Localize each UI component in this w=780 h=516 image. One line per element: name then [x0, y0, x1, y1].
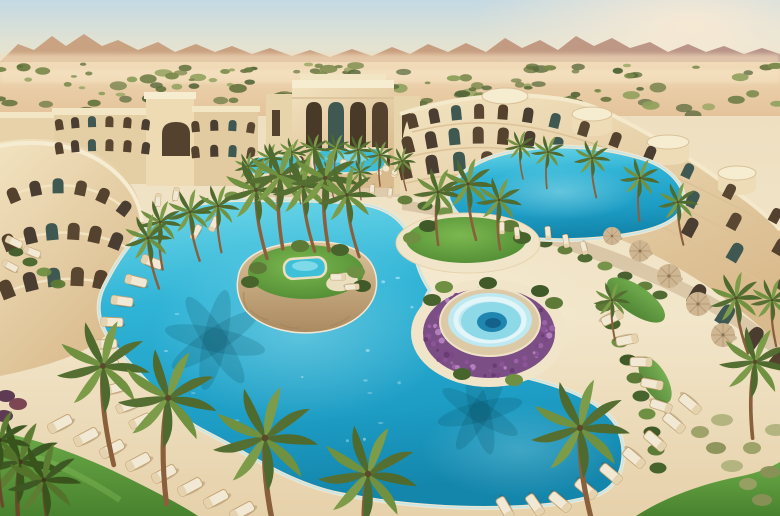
dry-shrub [706, 442, 726, 454]
scrub-bush [623, 64, 631, 67]
dry-shrub [711, 414, 733, 426]
sparkle [395, 277, 400, 279]
sparkle [367, 392, 372, 394]
arch-window [71, 140, 80, 153]
whirlpool-highlight [292, 261, 318, 271]
bush [435, 281, 453, 293]
flower [450, 361, 453, 364]
flower [549, 325, 555, 331]
scrub-bush [692, 66, 700, 69]
flower [431, 341, 436, 346]
arch-window [45, 223, 59, 241]
resort-aerial-photo [0, 0, 780, 516]
scrub-bush [732, 73, 749, 81]
scrub-bush [127, 77, 137, 83]
dry-shrub [739, 478, 757, 490]
flower [522, 362, 528, 368]
scrub-bush [459, 74, 472, 81]
bush [249, 262, 267, 274]
scrub-bush [623, 91, 640, 99]
flower [493, 363, 497, 367]
scrub-bush [702, 103, 715, 110]
scrub-bush [600, 97, 611, 102]
hedge-bush [650, 463, 667, 474]
tower-window [272, 110, 280, 136]
scrub-bush [335, 65, 343, 68]
sparkle [366, 349, 370, 352]
arch-window [228, 120, 237, 131]
sparkle [381, 280, 385, 283]
scrub-bush [85, 72, 92, 76]
grand-arch-window [306, 102, 322, 148]
scrub-bush [156, 86, 167, 92]
arch-window [210, 145, 218, 157]
scrub-bush [425, 82, 431, 85]
scrub-bush [88, 100, 101, 107]
scrub-bush [229, 98, 239, 104]
sun-lounger [500, 221, 506, 234]
parapet [144, 92, 196, 99]
arch-window [474, 104, 484, 119]
sparkle [398, 381, 401, 384]
bush [453, 368, 471, 380]
arch-window [123, 117, 132, 129]
scrub-bush [594, 89, 600, 92]
sun-lounger [329, 273, 346, 280]
parapet [52, 108, 148, 115]
grand-arch-window [372, 102, 388, 148]
flower [491, 373, 495, 377]
flower [510, 368, 515, 373]
sparkle [410, 306, 413, 309]
flower [539, 308, 544, 313]
bush [23, 258, 38, 267]
arch-window [123, 140, 132, 153]
flower [428, 324, 432, 328]
flower [542, 320, 547, 325]
flower [423, 337, 428, 342]
scrub-bush [650, 83, 667, 93]
sparkle [164, 350, 168, 352]
scrub-bush [229, 84, 247, 93]
arch-window [228, 145, 237, 157]
parapet [292, 80, 394, 88]
scrub-bush [244, 80, 255, 85]
flower [489, 369, 492, 372]
parapet [192, 106, 260, 112]
flower [534, 344, 538, 348]
scrub-bush [543, 65, 556, 70]
flower [522, 356, 527, 361]
dry-shrub [752, 494, 772, 506]
scrub-bush [229, 68, 236, 71]
bush [531, 285, 549, 297]
scrub-bush [189, 78, 196, 81]
scrub-bush [119, 96, 132, 103]
scrub-bush [80, 63, 86, 66]
scrub-bush [454, 92, 464, 97]
arch-window [88, 116, 96, 127]
scrub-bush [24, 78, 32, 82]
dry-shrub [721, 460, 743, 472]
sparkle [301, 376, 304, 378]
scrub-bush [244, 67, 253, 72]
scrub-bush [469, 87, 477, 91]
flower [483, 374, 486, 377]
bush [403, 232, 421, 244]
scene-canvas [0, 0, 780, 516]
scrub-bush [79, 86, 86, 89]
bush [479, 277, 497, 289]
scrub-bush [642, 101, 660, 110]
flower [533, 351, 536, 354]
arch-window [473, 127, 484, 144]
scrub-bush [532, 81, 546, 87]
scrub-bush [189, 83, 200, 89]
bush [505, 374, 523, 386]
scrub-bush [71, 75, 77, 78]
flower [443, 358, 447, 362]
bush [419, 220, 437, 232]
scrub-bush [315, 64, 324, 69]
arch-window [71, 117, 80, 129]
flower [439, 338, 445, 344]
scrub-bush [526, 63, 539, 69]
bush [291, 240, 309, 252]
flower [503, 366, 506, 369]
bush [37, 268, 52, 277]
arch-window [70, 267, 84, 287]
dry-shrub [760, 466, 780, 478]
flower [444, 352, 450, 358]
grand-arch-window [328, 102, 344, 148]
scrub-bush [676, 104, 692, 112]
scrub-bush [624, 73, 635, 79]
scrub-bush [728, 96, 745, 104]
scrub-bush [571, 92, 581, 98]
flower [544, 337, 549, 342]
scrub-bush [110, 81, 127, 90]
scrub-bush [213, 97, 228, 104]
sparkle [363, 379, 368, 381]
parapet [0, 112, 58, 118]
dry-shrub [743, 442, 761, 454]
bush [347, 266, 365, 278]
scrub-bush [165, 73, 179, 80]
scrub-bush [524, 86, 533, 90]
flower [465, 360, 469, 364]
sun-lounger [627, 356, 652, 367]
scrub-bush [98, 92, 105, 96]
arch-window [210, 120, 218, 131]
scrub-bush [746, 90, 759, 97]
sparkle [191, 392, 195, 394]
scrub-bush [511, 78, 522, 82]
scrub-bush [613, 68, 623, 74]
scrub-bush [636, 87, 644, 91]
arch-window [52, 178, 63, 193]
flower [540, 326, 546, 332]
scrub-bush [209, 78, 217, 82]
scrub-bush [304, 63, 313, 67]
bush [545, 297, 563, 309]
scrub-bush [140, 74, 157, 83]
scrub-bush [17, 65, 23, 68]
arch-window [88, 139, 96, 151]
scrub-bush [39, 101, 53, 108]
scrub-bush [396, 69, 411, 75]
sparkle [378, 422, 384, 424]
bush [423, 294, 441, 306]
scrub-bush [64, 82, 72, 87]
arch-window [105, 116, 113, 127]
bush [331, 244, 349, 256]
flower [499, 362, 505, 368]
bush [241, 276, 259, 288]
arch-window [105, 139, 113, 151]
bush [398, 196, 413, 205]
scrub-bush [35, 67, 50, 74]
scrub-bush [572, 69, 580, 73]
flower [538, 343, 543, 348]
arch-window [497, 127, 509, 145]
hedge-bush [633, 391, 650, 402]
flower [514, 359, 519, 364]
flowering-shrub [9, 398, 27, 410]
tower-arch-window [162, 122, 190, 156]
sparkle [363, 438, 366, 441]
scrub-bush [172, 84, 183, 90]
arch-window [497, 104, 508, 120]
scrub-bush [572, 64, 585, 71]
dry-shrub [691, 426, 709, 438]
scrub-bush [293, 70, 300, 74]
sparkle [174, 313, 179, 315]
bush [578, 254, 593, 263]
bush [51, 280, 66, 289]
flower [436, 349, 439, 352]
arch-window [67, 222, 80, 240]
sparkle [346, 439, 349, 442]
scrub-bush [421, 98, 433, 103]
water-shimmer [480, 164, 640, 220]
scrub-bush [447, 75, 461, 81]
bush [598, 262, 613, 271]
hedge-bush [639, 409, 656, 420]
flower [496, 373, 501, 378]
flower [436, 357, 441, 362]
spa-drain [485, 318, 501, 328]
